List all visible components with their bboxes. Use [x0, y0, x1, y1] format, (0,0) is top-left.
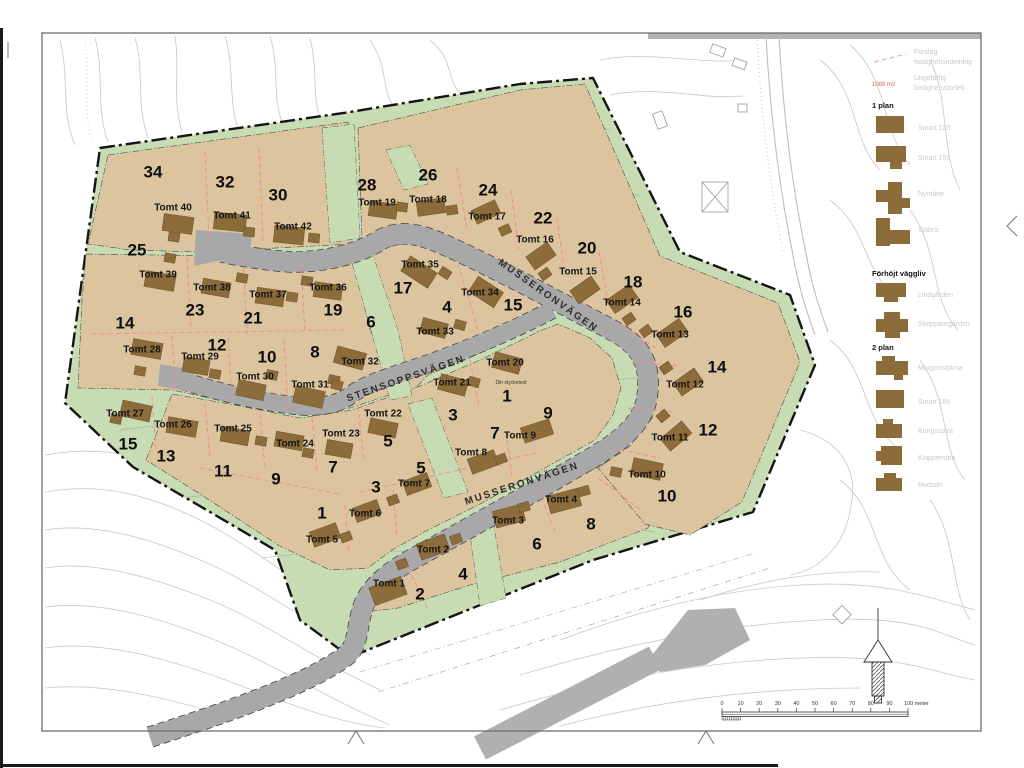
- street-number-label: 12: [699, 421, 718, 440]
- lot-name-label: Tomt 10: [628, 470, 666, 481]
- lot-name-label: Tomt 34: [461, 288, 499, 299]
- lot-name-label: Tomt 30: [236, 372, 274, 383]
- lot-name-label: Tomt 41: [213, 211, 251, 222]
- lot-name-label: Tomt 42: [274, 222, 312, 233]
- placeholder-note: Din stycketext: [495, 380, 527, 386]
- lot-name-label: Tomt 6: [349, 509, 381, 520]
- street-number-label: 23: [186, 301, 205, 320]
- lot-name-label: Tomt 23: [322, 429, 360, 440]
- lot-name-label: Tomt 40: [154, 203, 192, 214]
- lot-name-label: Tomt 27: [106, 409, 144, 420]
- legend-section-header: Förhöjt väggliv: [872, 269, 927, 278]
- legend-house-icon: [876, 390, 904, 408]
- lot-name-label: Tomt 3: [492, 516, 524, 527]
- street-number-label: 1: [502, 387, 511, 406]
- street-number-label: 5: [416, 459, 425, 478]
- legend-label: Skepparegården: [918, 320, 970, 328]
- legend-label: Smart 125: [918, 125, 950, 132]
- garage-footprint: [610, 466, 623, 477]
- lot-name-label: Tomt 14: [603, 298, 641, 309]
- lot-name-label: Tomt 5: [306, 535, 338, 546]
- legend-size-sample: 1088 m2: [872, 82, 896, 88]
- street-number-label: 8: [586, 515, 595, 534]
- lot-name-label: Tomt 25: [214, 424, 252, 435]
- street-number-label: 9: [271, 470, 280, 489]
- scale-tick-label: 80: [868, 701, 874, 707]
- street-number-label: 30: [269, 186, 288, 205]
- street-number-label: 6: [366, 313, 375, 332]
- street-number-label: 4: [458, 565, 468, 584]
- street-number-label: 3: [371, 478, 380, 497]
- site-plan-sheet: Tomt 12Tomt 24Tomt 36Tomt 48Tomt 51Tomt …: [0, 0, 1024, 768]
- street-number-label: 25: [128, 241, 147, 260]
- legend-label: Sjöbris: [918, 227, 940, 234]
- lot-name-label: Tomt 37: [249, 290, 287, 301]
- garage-footprint: [446, 205, 458, 215]
- scale-end-label: 100 meter: [904, 701, 929, 707]
- lot-name-label: Tomt 18: [409, 195, 447, 206]
- street-number-label: 7: [328, 458, 337, 477]
- street-number-label: 10: [258, 348, 277, 367]
- lot-name-label: Tomt 8: [455, 448, 487, 459]
- scale-tick-label: 70: [849, 701, 855, 707]
- lot-name-label: Tomt 12: [666, 380, 704, 391]
- page-edge-bottom: [0, 764, 778, 767]
- lot-name-label: Tomt 11: [651, 433, 688, 444]
- legend-label: Lindgården: [918, 291, 953, 299]
- street-number-label: 18: [624, 273, 643, 292]
- street-number-label: 10: [658, 487, 677, 506]
- legend-label: Smart 150: [918, 155, 950, 162]
- street-number-label: 32: [216, 173, 235, 192]
- garage-footprint: [286, 292, 298, 302]
- lot-name-label: Tomt 26: [154, 420, 192, 431]
- street-number-label: 7: [490, 424, 499, 443]
- scale-tick-label: 10: [738, 701, 744, 707]
- garage-footprint: [243, 227, 255, 237]
- street-number-label: 14: [116, 314, 135, 333]
- legend-label: Morgonstjärna: [918, 365, 963, 372]
- lot-name-label: Tomt 36: [309, 283, 347, 294]
- legend-label: Förslag: [914, 49, 937, 56]
- scale-tick-label: 60: [831, 701, 837, 707]
- street-number-label: 4: [442, 298, 452, 317]
- garage-footprint: [168, 232, 180, 242]
- street-number-label: 2: [415, 585, 424, 604]
- lot-name-label: Tomt 7: [398, 479, 430, 490]
- legend-house-icon: [876, 116, 904, 133]
- legend-label: Kungsspira: [918, 428, 953, 435]
- street-number-label: 34: [144, 163, 163, 182]
- street-number-label: 19: [324, 301, 343, 320]
- scale-tick-label: 50: [812, 701, 818, 707]
- street-number-label: 6: [532, 535, 541, 554]
- page-edge-left: [0, 28, 3, 768]
- lot-name-label: Tomt 21: [433, 378, 471, 389]
- street-number-label: 9: [543, 404, 552, 423]
- garage-footprint: [134, 366, 146, 377]
- garage-footprint: [396, 202, 408, 212]
- garage-footprint: [255, 436, 267, 447]
- lot-name-label: Tomt 33: [416, 327, 454, 338]
- lot-name-label: Tomt 16: [516, 235, 554, 246]
- lot-name-label: Tomt 35: [401, 260, 439, 271]
- lot-name-label: Tomt 22: [364, 409, 402, 420]
- street-number-label: 3: [448, 406, 457, 425]
- lot-name-label: Tomt 9: [504, 431, 536, 442]
- scale-tick-label: 40: [793, 701, 799, 707]
- street-number-label: 1: [317, 504, 326, 523]
- street-number-label: 28: [358, 176, 377, 195]
- garage-footprint: [164, 253, 176, 264]
- lot-name-label: Tomt 20: [486, 358, 524, 369]
- legend-label: fastighetsstorlek: [914, 85, 965, 92]
- lot-name-label: Tomt 13: [651, 330, 689, 341]
- scale-tick-label: 90: [886, 701, 892, 707]
- street-number-label: 11: [214, 462, 232, 481]
- street-number-label: 21: [244, 309, 263, 328]
- street-number-label: 15: [504, 296, 523, 315]
- site-plan-map: Tomt 12Tomt 24Tomt 36Tomt 48Tomt 51Tomt …: [0, 0, 1024, 768]
- scale-tick-label: 20: [756, 701, 762, 707]
- scale-tick-label: 0: [720, 701, 723, 707]
- legend-label: Klappersten: [918, 455, 955, 462]
- lot-name-label: Tomt 38: [193, 283, 231, 294]
- street-number-label: 24: [479, 181, 498, 200]
- street-number-label: 5: [383, 432, 392, 451]
- legend-label: Hudson: [918, 482, 942, 489]
- street-number-label: 17: [394, 279, 413, 298]
- street-number-label: 12: [208, 336, 227, 355]
- lot-name-label: Tomt 31: [291, 380, 329, 391]
- garage-footprint: [308, 233, 320, 243]
- lot-name-label: Tomt 15: [559, 267, 597, 278]
- scale-tick-label: 30: [775, 701, 781, 707]
- street-number-label: 14: [708, 358, 727, 377]
- lot-name-label: Tomt 19: [358, 198, 396, 209]
- lot-name-label: Tomt 4: [545, 495, 577, 506]
- lot-name-label: Tomt 17: [468, 212, 506, 223]
- street-number-label: 8: [310, 343, 319, 362]
- lot-name-label: Tomt 39: [139, 270, 177, 281]
- legend-label: Nymåne: [918, 190, 944, 198]
- lot-name-label: Tomt 1: [373, 579, 405, 590]
- legend-section-header: 2 plan: [872, 343, 894, 352]
- legend-label: fastighetsindelning: [914, 59, 972, 66]
- legend-label: Ungefärlig: [914, 75, 946, 82]
- lot-name-label: Tomt 24: [276, 439, 314, 450]
- street-number-label: 16: [674, 303, 693, 322]
- street-number-label: 22: [534, 209, 553, 228]
- legend-section-header: 1 plan: [872, 101, 894, 110]
- street-number-label: 20: [578, 239, 597, 258]
- street-number-label: 13: [157, 447, 176, 466]
- street-number-label: 26: [419, 166, 438, 185]
- lot-name-label: Tomt 2: [417, 545, 449, 556]
- lot-name-label: Tomt 32: [341, 357, 379, 368]
- lot-name-label: Tomt 28: [123, 345, 161, 356]
- garage-footprint: [236, 273, 248, 284]
- garage-footprint: [209, 369, 221, 380]
- legend-label: Smart 166: [918, 399, 950, 406]
- street-number-label: 15: [119, 435, 138, 454]
